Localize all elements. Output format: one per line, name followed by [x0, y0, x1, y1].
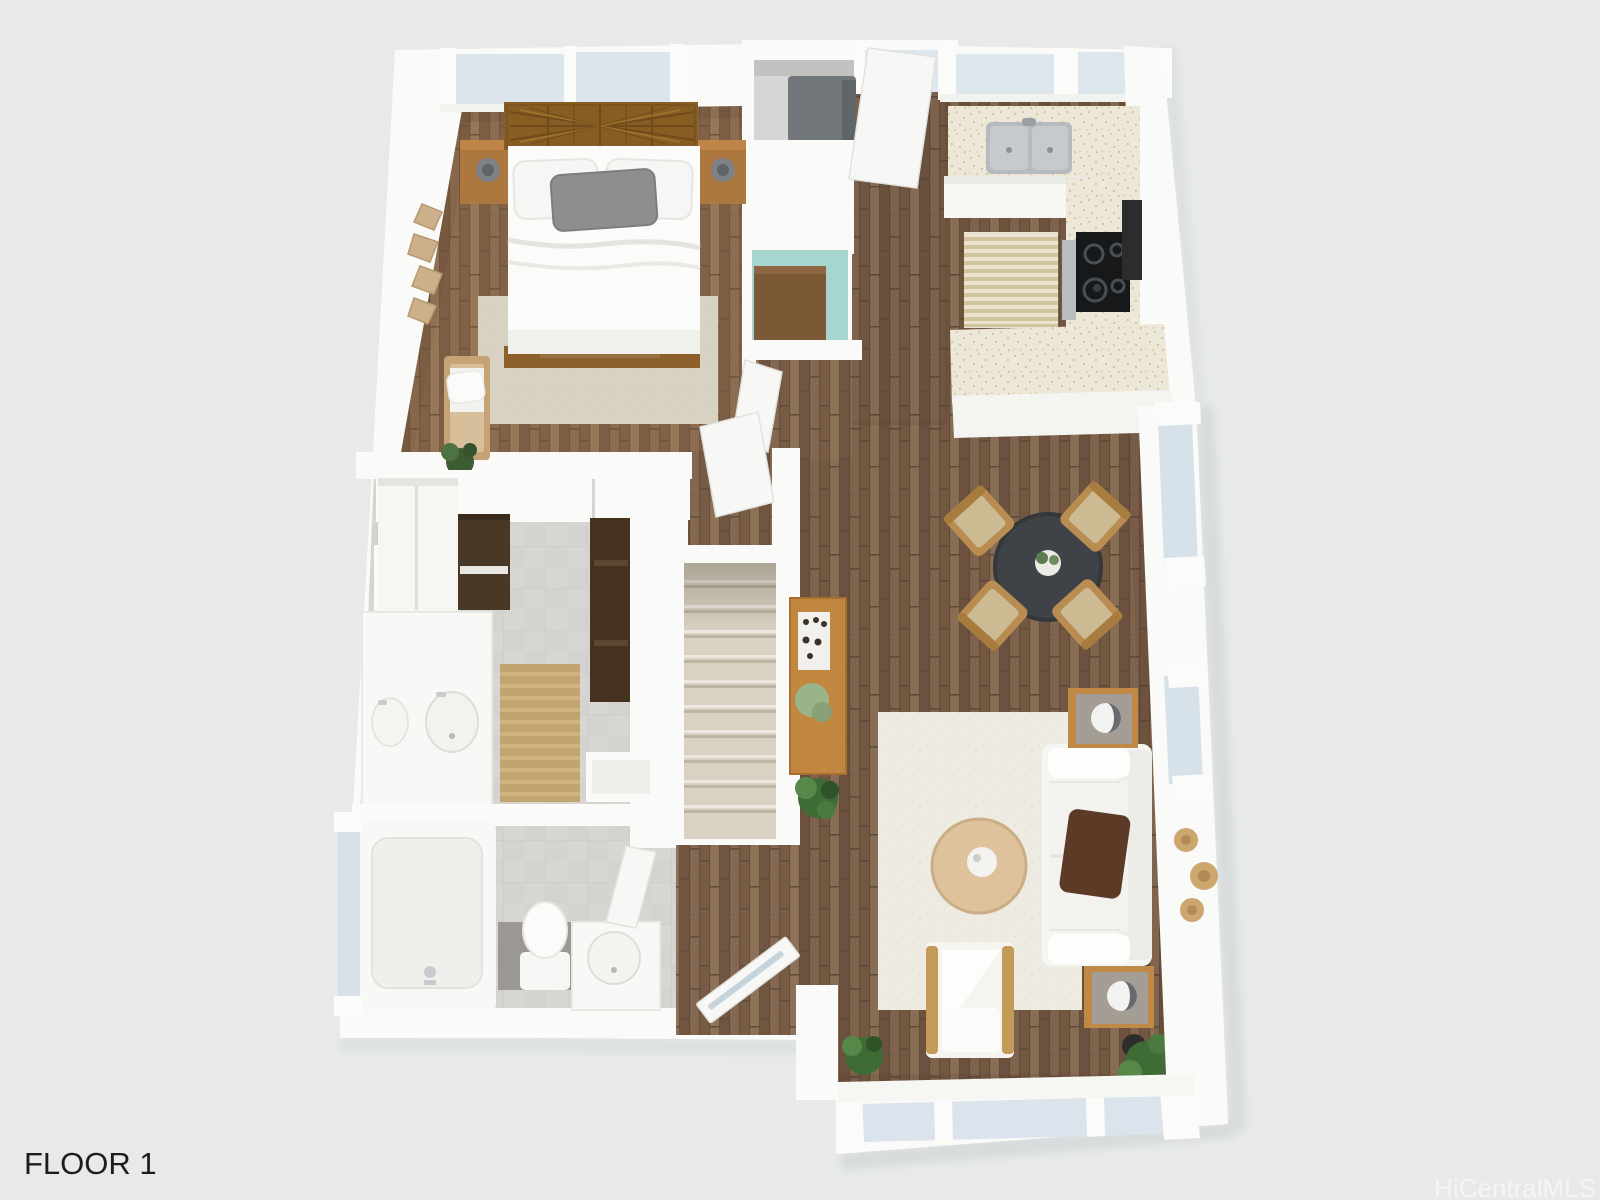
- svg-text:HiCentralMLS: HiCentralMLS: [1434, 1173, 1596, 1200]
- svg-text:FLOOR 1: FLOOR 1: [24, 1146, 157, 1181]
